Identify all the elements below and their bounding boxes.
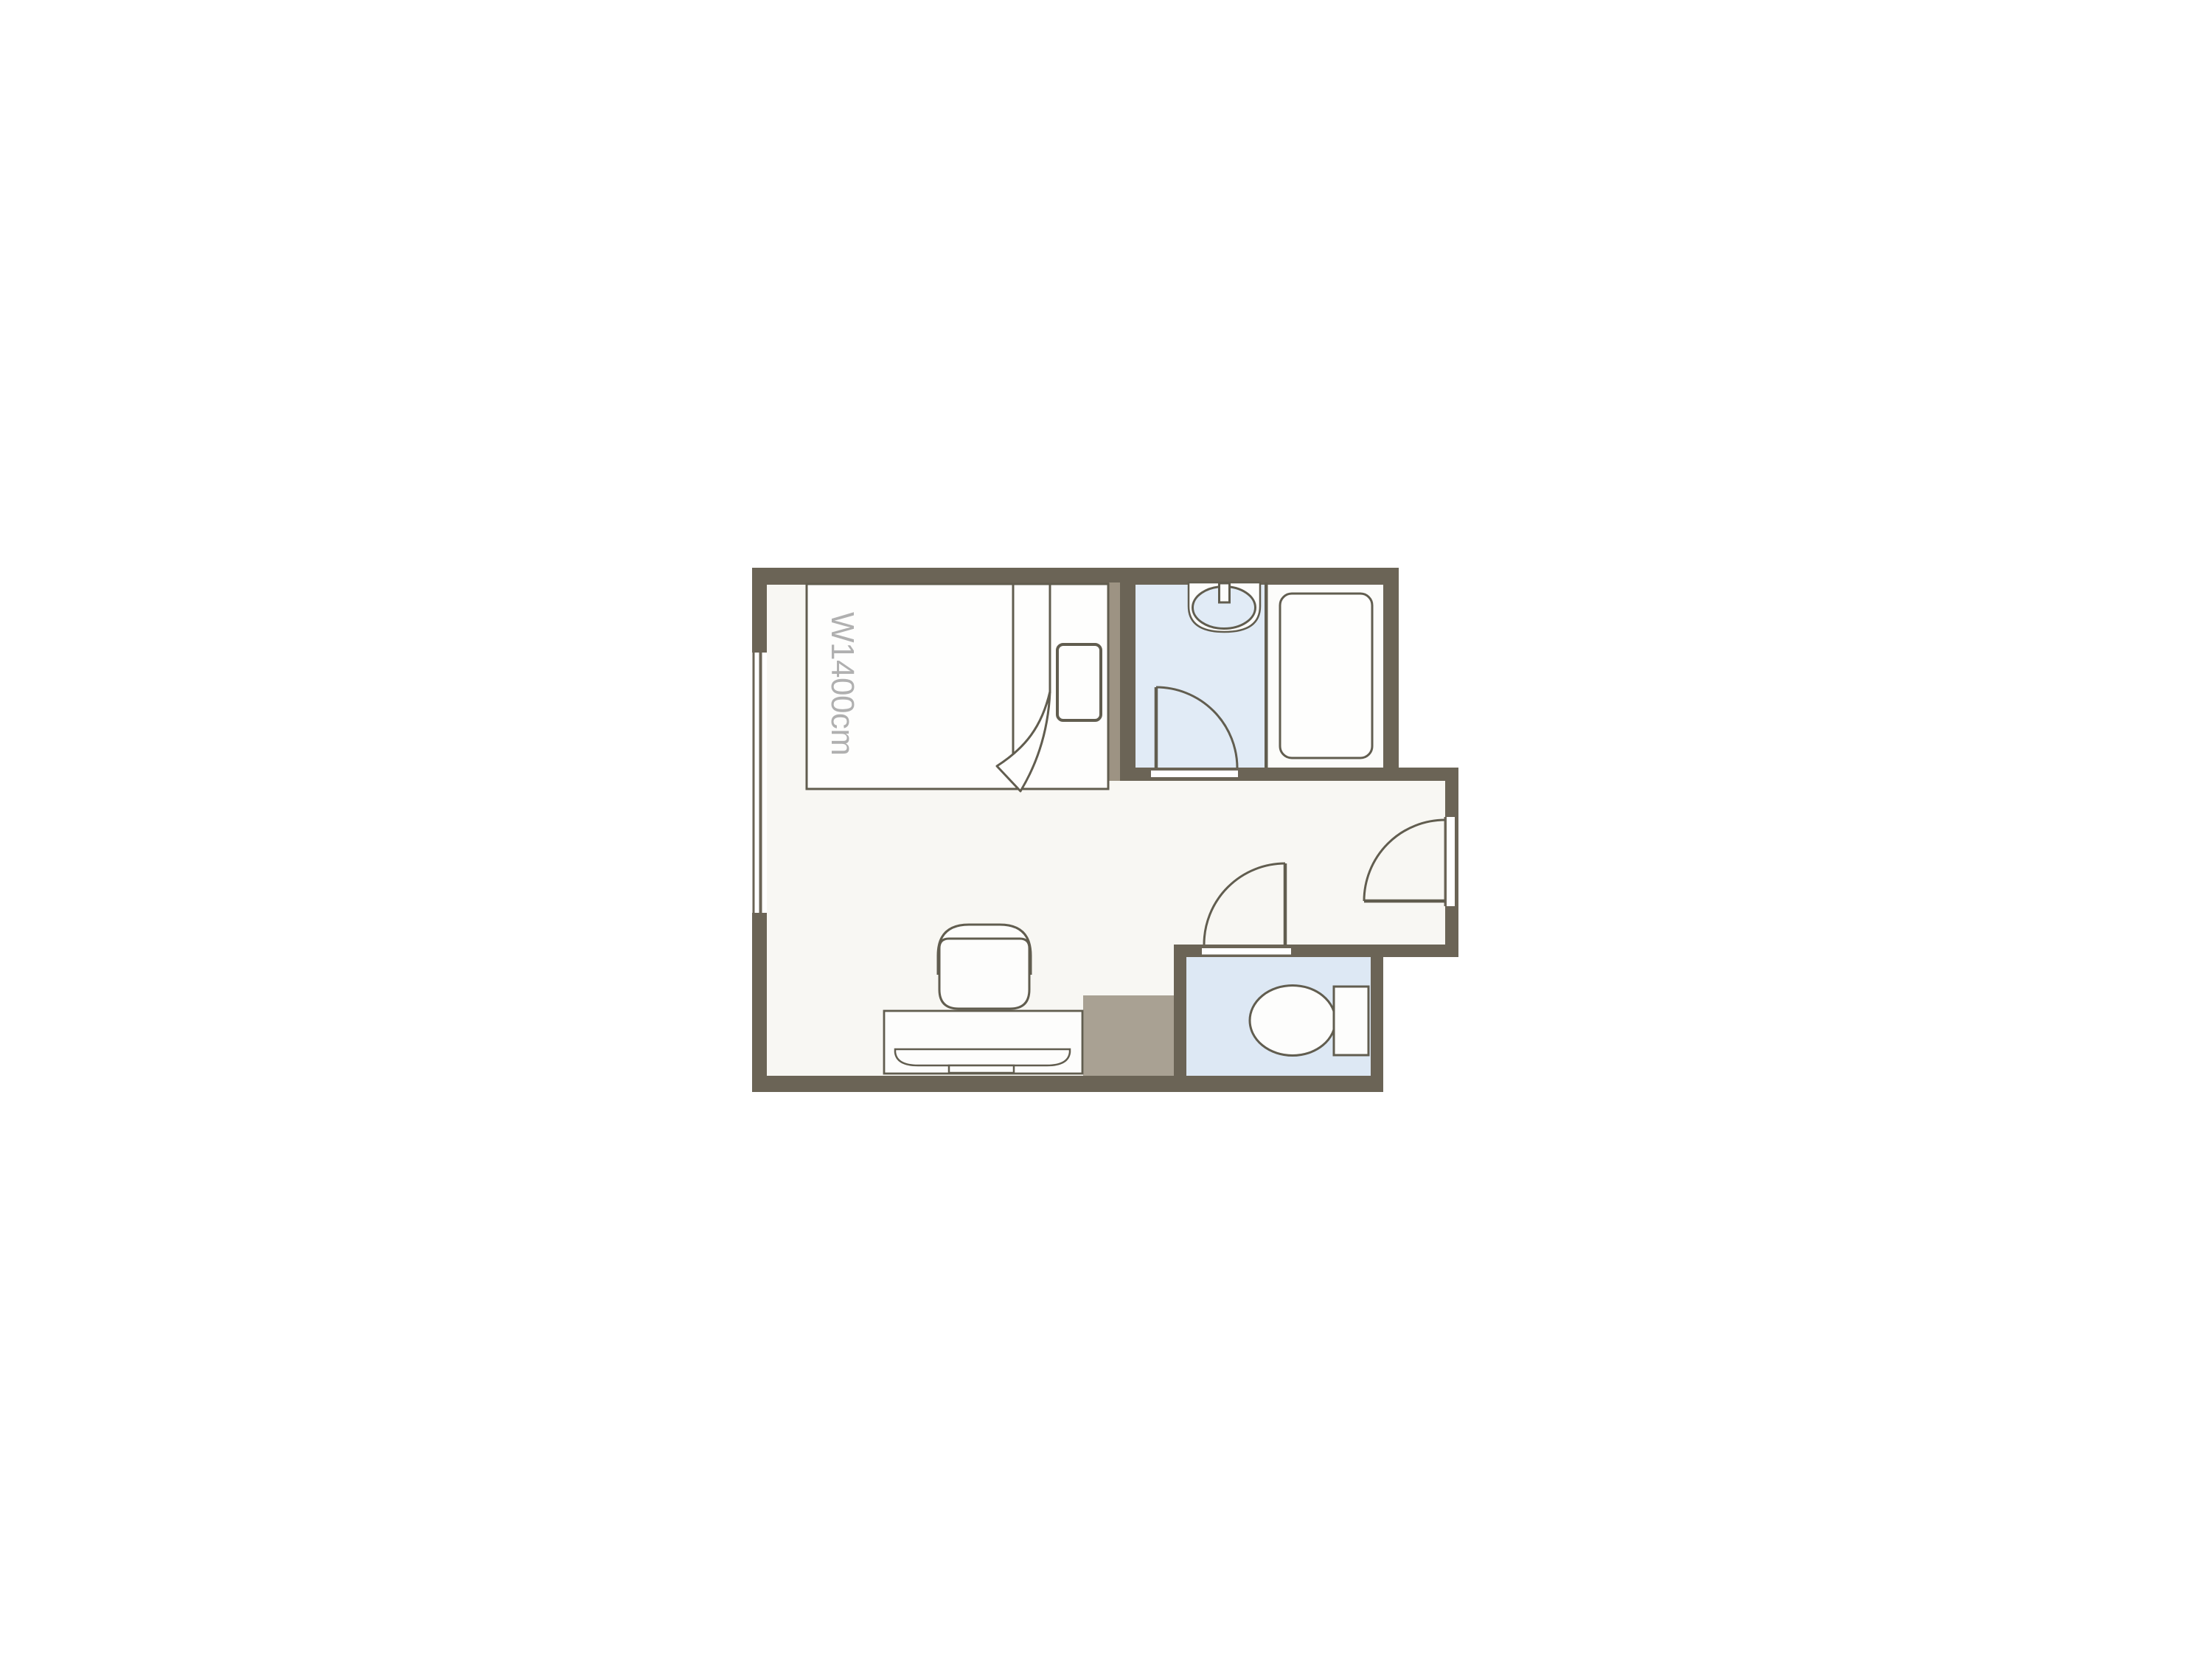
svg-text:W1400cm: W1400cm: [824, 612, 860, 756]
